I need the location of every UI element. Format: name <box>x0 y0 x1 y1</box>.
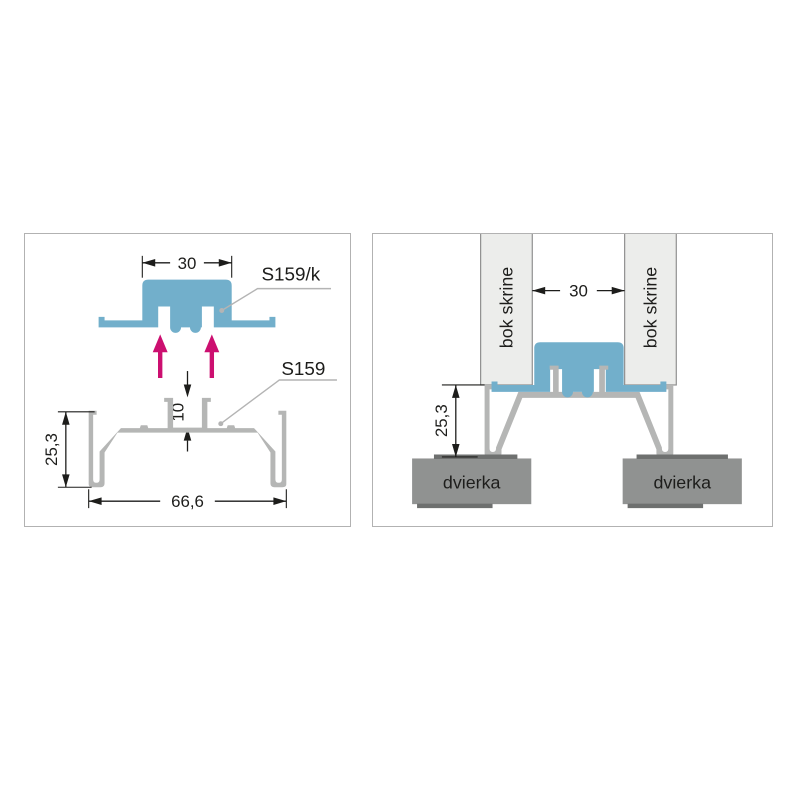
doors: dvierka dvierka <box>412 454 742 508</box>
drawing-stage: 30 S159/k <box>0 0 800 800</box>
door-right-bottom-edge <box>628 504 703 508</box>
dimension-profile-height-253: 25,3 <box>42 412 95 487</box>
exploded-view-drawing: 30 S159/k <box>25 234 350 526</box>
dimension-value-gap-width: 30 <box>569 282 588 301</box>
cabinet-side-right-label: bok skrine <box>640 267 660 348</box>
dimension-value-assembled-height: 25,3 <box>432 404 451 437</box>
panel-exploded-view: 30 S159/k <box>24 233 351 527</box>
profile-label-s159k: S159/k <box>261 264 320 285</box>
door-left-bottom-edge <box>417 504 492 508</box>
arrow-up-right <box>204 334 219 378</box>
leader-dot <box>218 421 223 426</box>
leader-dot <box>219 308 224 313</box>
door-right-top-edge <box>637 454 728 458</box>
assembled-view-drawing: bok skrine bok skrine 30 <box>373 234 772 526</box>
dimension-total-width-666: 66,6 <box>89 489 287 511</box>
dimension-assembled-height-253: 25,3 <box>432 385 485 457</box>
panel-assembled-view: bok skrine bok skrine 30 <box>372 233 773 527</box>
insert-direction-arrows <box>153 334 220 378</box>
dimension-top-width-30: 30 <box>142 254 231 278</box>
dimension-value-total-width: 66,6 <box>171 492 204 511</box>
profile-label-s159: S159 <box>281 358 325 379</box>
profile-s159k-shape <box>99 280 276 333</box>
dimension-value-top-width: 30 <box>178 254 197 273</box>
label-s159k: S159/k <box>219 264 331 313</box>
dimension-gap-width-30: 30 <box>532 282 624 301</box>
label-s159: S159 <box>218 358 337 426</box>
cabinet-side-left-label: bok skrine <box>496 267 516 348</box>
door-right-label: dvierka <box>653 472 711 492</box>
door-left-label: dvierka <box>443 472 501 492</box>
dimension-value-profile-height: 25,3 <box>42 433 61 466</box>
arrow-up-left <box>153 334 168 378</box>
